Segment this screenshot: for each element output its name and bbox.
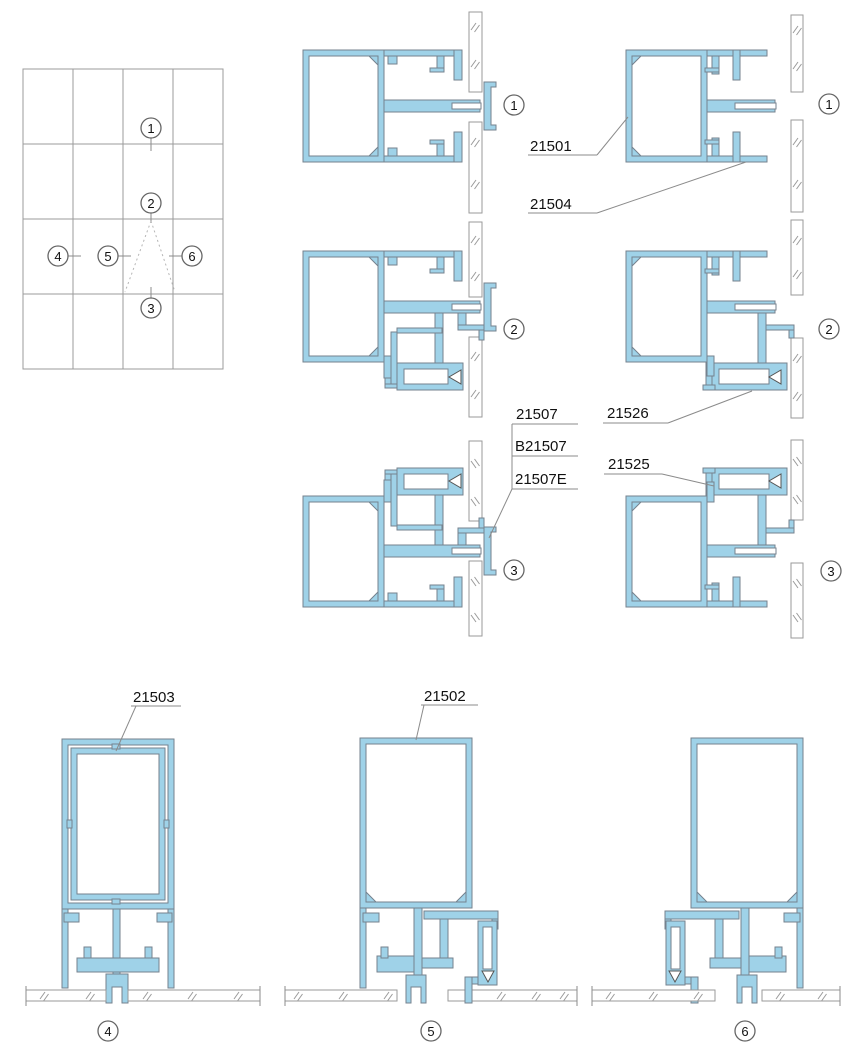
svg-text:2: 2 [825, 322, 832, 337]
svg-text:6: 6 [741, 1024, 748, 1039]
glass-pane [762, 990, 840, 1001]
plan-callout-1: 1 [141, 118, 161, 138]
glass-pane [791, 120, 803, 212]
svg-text:4: 4 [54, 249, 61, 264]
detail-3-left [303, 441, 496, 636]
detail-callout-2: 2 [504, 319, 524, 339]
svg-text:1: 1 [825, 97, 832, 112]
detail-2-left [303, 222, 496, 417]
detail-2-right [626, 220, 803, 418]
svg-text:5: 5 [104, 249, 111, 264]
plan-callout-6: 6 [182, 246, 202, 266]
svg-text:3: 3 [827, 564, 834, 579]
detail-callout-6: 6 [735, 1021, 755, 1041]
detail-callout-3: 3 [504, 560, 524, 580]
svg-text:1: 1 [147, 121, 154, 136]
label-21501: 21501 [530, 138, 572, 155]
label-21502: 21502 [424, 688, 466, 705]
label-21504: 21504 [530, 196, 572, 213]
elevation-key-plan: 1 2 3 4 5 6 [23, 69, 223, 369]
svg-text:4: 4 [104, 1024, 111, 1039]
detail-6: 6 [592, 738, 840, 1041]
detail-1-left: 1 [303, 12, 524, 213]
bottom-connector [62, 909, 174, 1003]
glazing-leg [465, 977, 472, 1003]
label-B21507: B21507 [515, 438, 567, 455]
plan-callout-4: 4 [48, 246, 68, 266]
label-21526: 21526 [607, 405, 649, 422]
svg-text:2: 2 [147, 196, 154, 211]
label-21503: 21503 [133, 689, 175, 706]
label-21507E: 21507E [515, 471, 567, 488]
plan-callout-2: 2 [141, 193, 161, 213]
plan-callout-3: 3 [141, 298, 161, 318]
part-labels: 21501 21504 21507 B21507 21507E 21526 21… [116, 117, 752, 751]
svg-text:2: 2 [510, 322, 517, 337]
plan-callout-5: 5 [98, 246, 118, 266]
detail-callout-2b: 2 [819, 319, 839, 339]
detail-4: 4 [26, 739, 260, 1041]
detail-callout-5: 5 [421, 1021, 441, 1041]
svg-text:3: 3 [147, 301, 154, 316]
drawing-canvas: 1 2 3 4 5 6 1 1 2 2 3 3 [0, 0, 850, 1064]
detail-callout-1b: 1 [819, 94, 839, 114]
curtain-wall-drawing: 1 2 3 4 5 6 1 1 2 2 3 3 [0, 0, 850, 1064]
detail-callout-4: 4 [98, 1021, 118, 1041]
label-21525: 21525 [608, 456, 650, 473]
detail-callout-1: 1 [504, 95, 524, 115]
svg-text:1: 1 [510, 98, 517, 113]
detail-5: 5 [285, 738, 577, 1041]
svg-text:5: 5 [427, 1024, 434, 1039]
detail-3-right [626, 440, 803, 638]
svg-text:3: 3 [510, 563, 517, 578]
label-21507: 21507 [516, 406, 558, 423]
detail-1-right: 1 [626, 15, 839, 212]
glass-pane [469, 122, 482, 213]
detail-callout-3b: 3 [821, 561, 841, 581]
svg-text:6: 6 [188, 249, 195, 264]
